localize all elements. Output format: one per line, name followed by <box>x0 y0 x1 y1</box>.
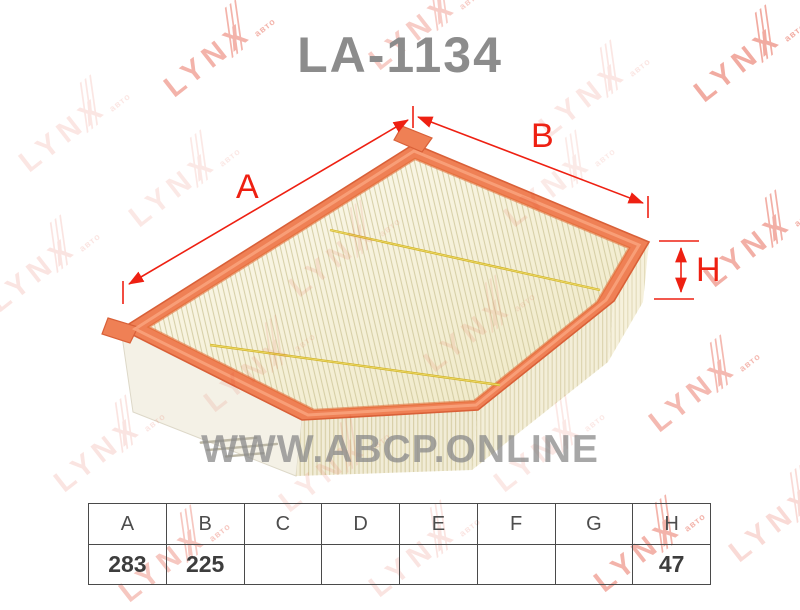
spec-col-E: E <box>400 504 478 545</box>
spec-value-B: 225 <box>166 545 244 585</box>
spec-value-A: 283 <box>89 545 167 585</box>
spec-col-G: G <box>555 504 633 545</box>
spec-value-H: 47 <box>633 545 711 585</box>
spec-col-B: B <box>166 504 244 545</box>
spec-col-H: H <box>633 504 711 545</box>
site-watermark: WWW.ABCP.ONLINE <box>0 428 800 472</box>
spec-col-F: F <box>477 504 555 545</box>
spec-value-D <box>322 545 400 585</box>
spec-table-value-row: 28322547 <box>89 545 711 585</box>
spec-col-D: D <box>322 504 400 545</box>
page-title: LA-1134 <box>0 26 800 84</box>
spec-table: ABCDEFGH 28322547 <box>88 503 711 585</box>
spec-value-F <box>477 545 555 585</box>
spec-value-G <box>555 545 633 585</box>
spec-col-C: C <box>244 504 322 545</box>
spec-value-C <box>244 545 322 585</box>
spec-table-header-row: ABCDEFGH <box>89 504 711 545</box>
spec-col-A: A <box>89 504 167 545</box>
spec-value-E <box>400 545 478 585</box>
